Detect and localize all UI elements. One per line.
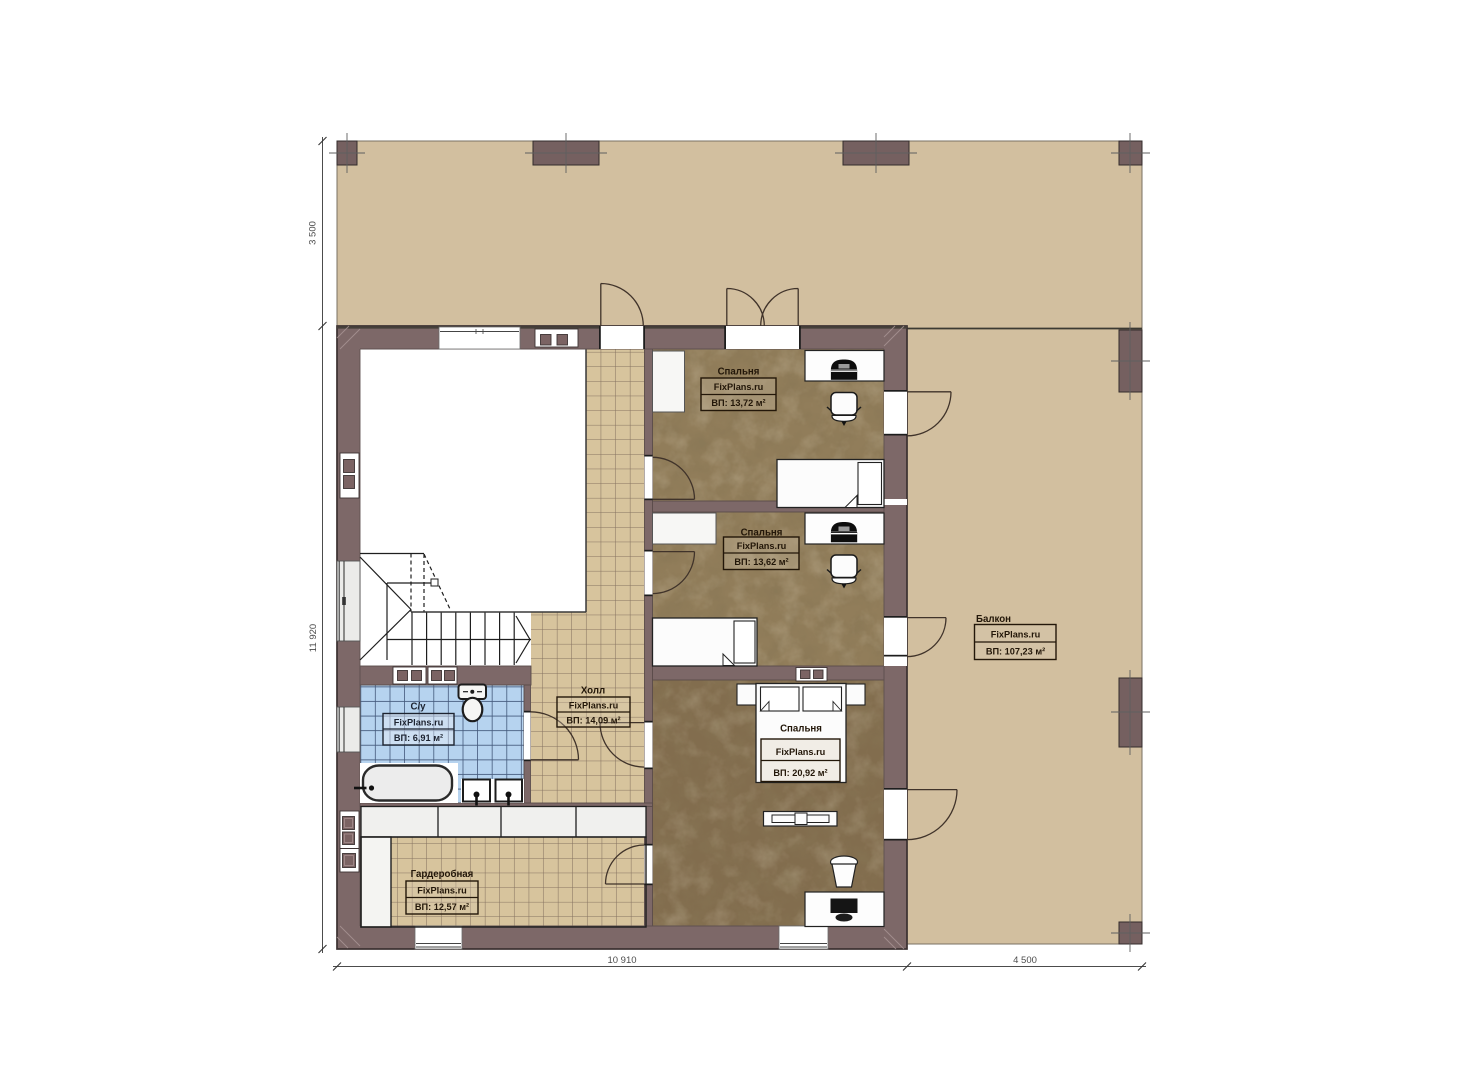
svg-text:С/у: С/у — [410, 702, 426, 713]
svg-text:FixPlans.ru: FixPlans.ru — [776, 747, 826, 757]
svg-text:ВП: 20,92 м²: ВП: 20,92 м² — [773, 768, 827, 778]
svg-text:Балкон: Балкон — [976, 614, 1011, 625]
svg-text:ВП: 13,72 м²: ВП: 13,72 м² — [711, 398, 765, 408]
svg-text:ВП: 13,62 м²: ВП: 13,62 м² — [734, 557, 788, 567]
svg-text:FixPlans.ru: FixPlans.ru — [737, 541, 787, 551]
svg-text:ВП: 12,57 м²: ВП: 12,57 м² — [415, 902, 469, 912]
svg-text:Гардеробная: Гардеробная — [411, 869, 474, 880]
svg-text:ВП: 14,09 м²: ВП: 14,09 м² — [566, 716, 620, 726]
svg-text:Спальня: Спальня — [780, 724, 822, 735]
svg-text:FixPlans.ru: FixPlans.ru — [417, 886, 467, 896]
svg-text:FixPlans.ru: FixPlans.ru — [394, 718, 444, 728]
svg-text:Холл: Холл — [581, 686, 605, 697]
svg-text:FixPlans.ru: FixPlans.ru — [991, 630, 1041, 640]
svg-text:10 910: 10 910 — [607, 955, 636, 966]
svg-text:3 500: 3 500 — [308, 221, 319, 245]
svg-text:11 920: 11 920 — [308, 624, 319, 652]
svg-text:ВП: 107,23 м²: ВП: 107,23 м² — [986, 647, 1045, 657]
svg-text:ВП: 6,91 м²: ВП: 6,91 м² — [394, 733, 443, 743]
svg-text:4 500: 4 500 — [1013, 955, 1037, 966]
svg-text:FixPlans.ru: FixPlans.ru — [714, 382, 764, 392]
svg-text:Спальня: Спальня — [718, 367, 760, 378]
svg-text:FixPlans.ru: FixPlans.ru — [569, 701, 619, 711]
